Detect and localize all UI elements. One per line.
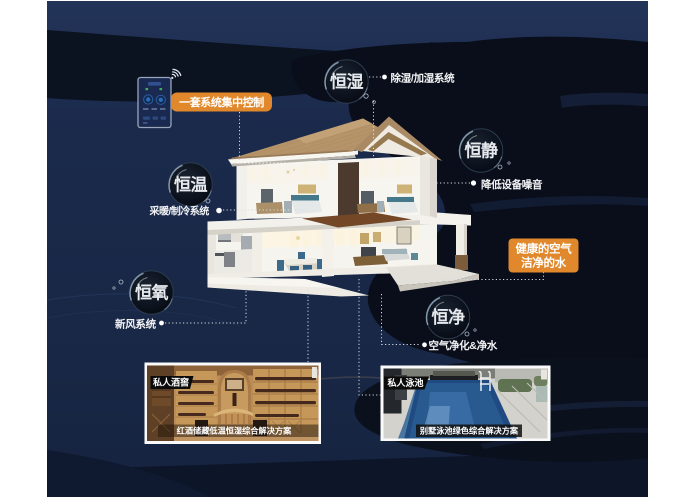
svg-text:一套系统集中控制: 一套系统集中控制 [179, 95, 264, 109]
svg-text:私人泳池: 私人泳池 [386, 377, 423, 388]
svg-text:恒氧: 恒氧 [135, 283, 168, 303]
svg-text:新风系统: 新风系统 [115, 318, 157, 331]
svg-text:降低设备噪音: 降低设备噪音 [481, 178, 543, 191]
svg-text:私人酒窖: 私人酒窖 [152, 377, 189, 388]
svg-text:洁净的水: 洁净的水 [521, 256, 567, 270]
svg-text:恒温: 恒温 [174, 175, 207, 195]
svg-text:采暖/制冷系统: 采暖/制冷系统 [149, 205, 210, 218]
svg-text:空气净化&净水: 空气净化&净水 [429, 339, 498, 352]
svg-text:红酒储藏低温恒湿综合解决方案: 红酒储藏低温恒湿综合解决方案 [177, 426, 292, 436]
svg-text:健康的空气: 健康的空气 [516, 242, 573, 256]
svg-text:恒静: 恒静 [465, 141, 498, 161]
svg-text:恒净: 恒净 [432, 307, 465, 327]
svg-text:除湿/加湿系统: 除湿/加湿系统 [391, 72, 456, 85]
svg-text:恒湿: 恒湿 [330, 72, 363, 92]
svg-text:别墅泳池绿色综合解决方案: 别墅泳池绿色综合解决方案 [419, 426, 519, 436]
